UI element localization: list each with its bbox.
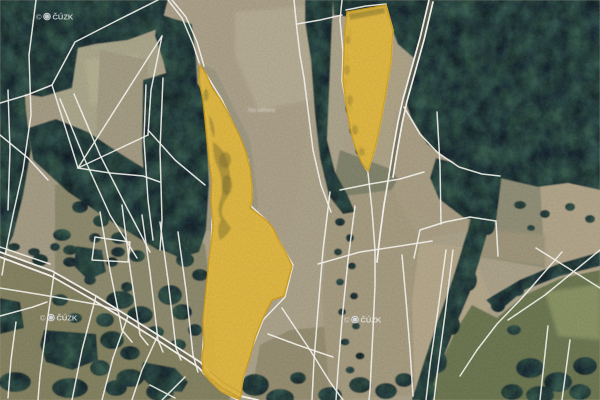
svg-text:ČÚZK: ČÚZK [361, 316, 382, 325]
svg-text:©: © [40, 314, 46, 323]
svg-text:©: © [36, 13, 42, 22]
svg-text:©: © [344, 316, 350, 325]
svg-text:ČÚZK: ČÚZK [53, 13, 74, 22]
svg-text:ČÚZK: ČÚZK [57, 314, 78, 323]
